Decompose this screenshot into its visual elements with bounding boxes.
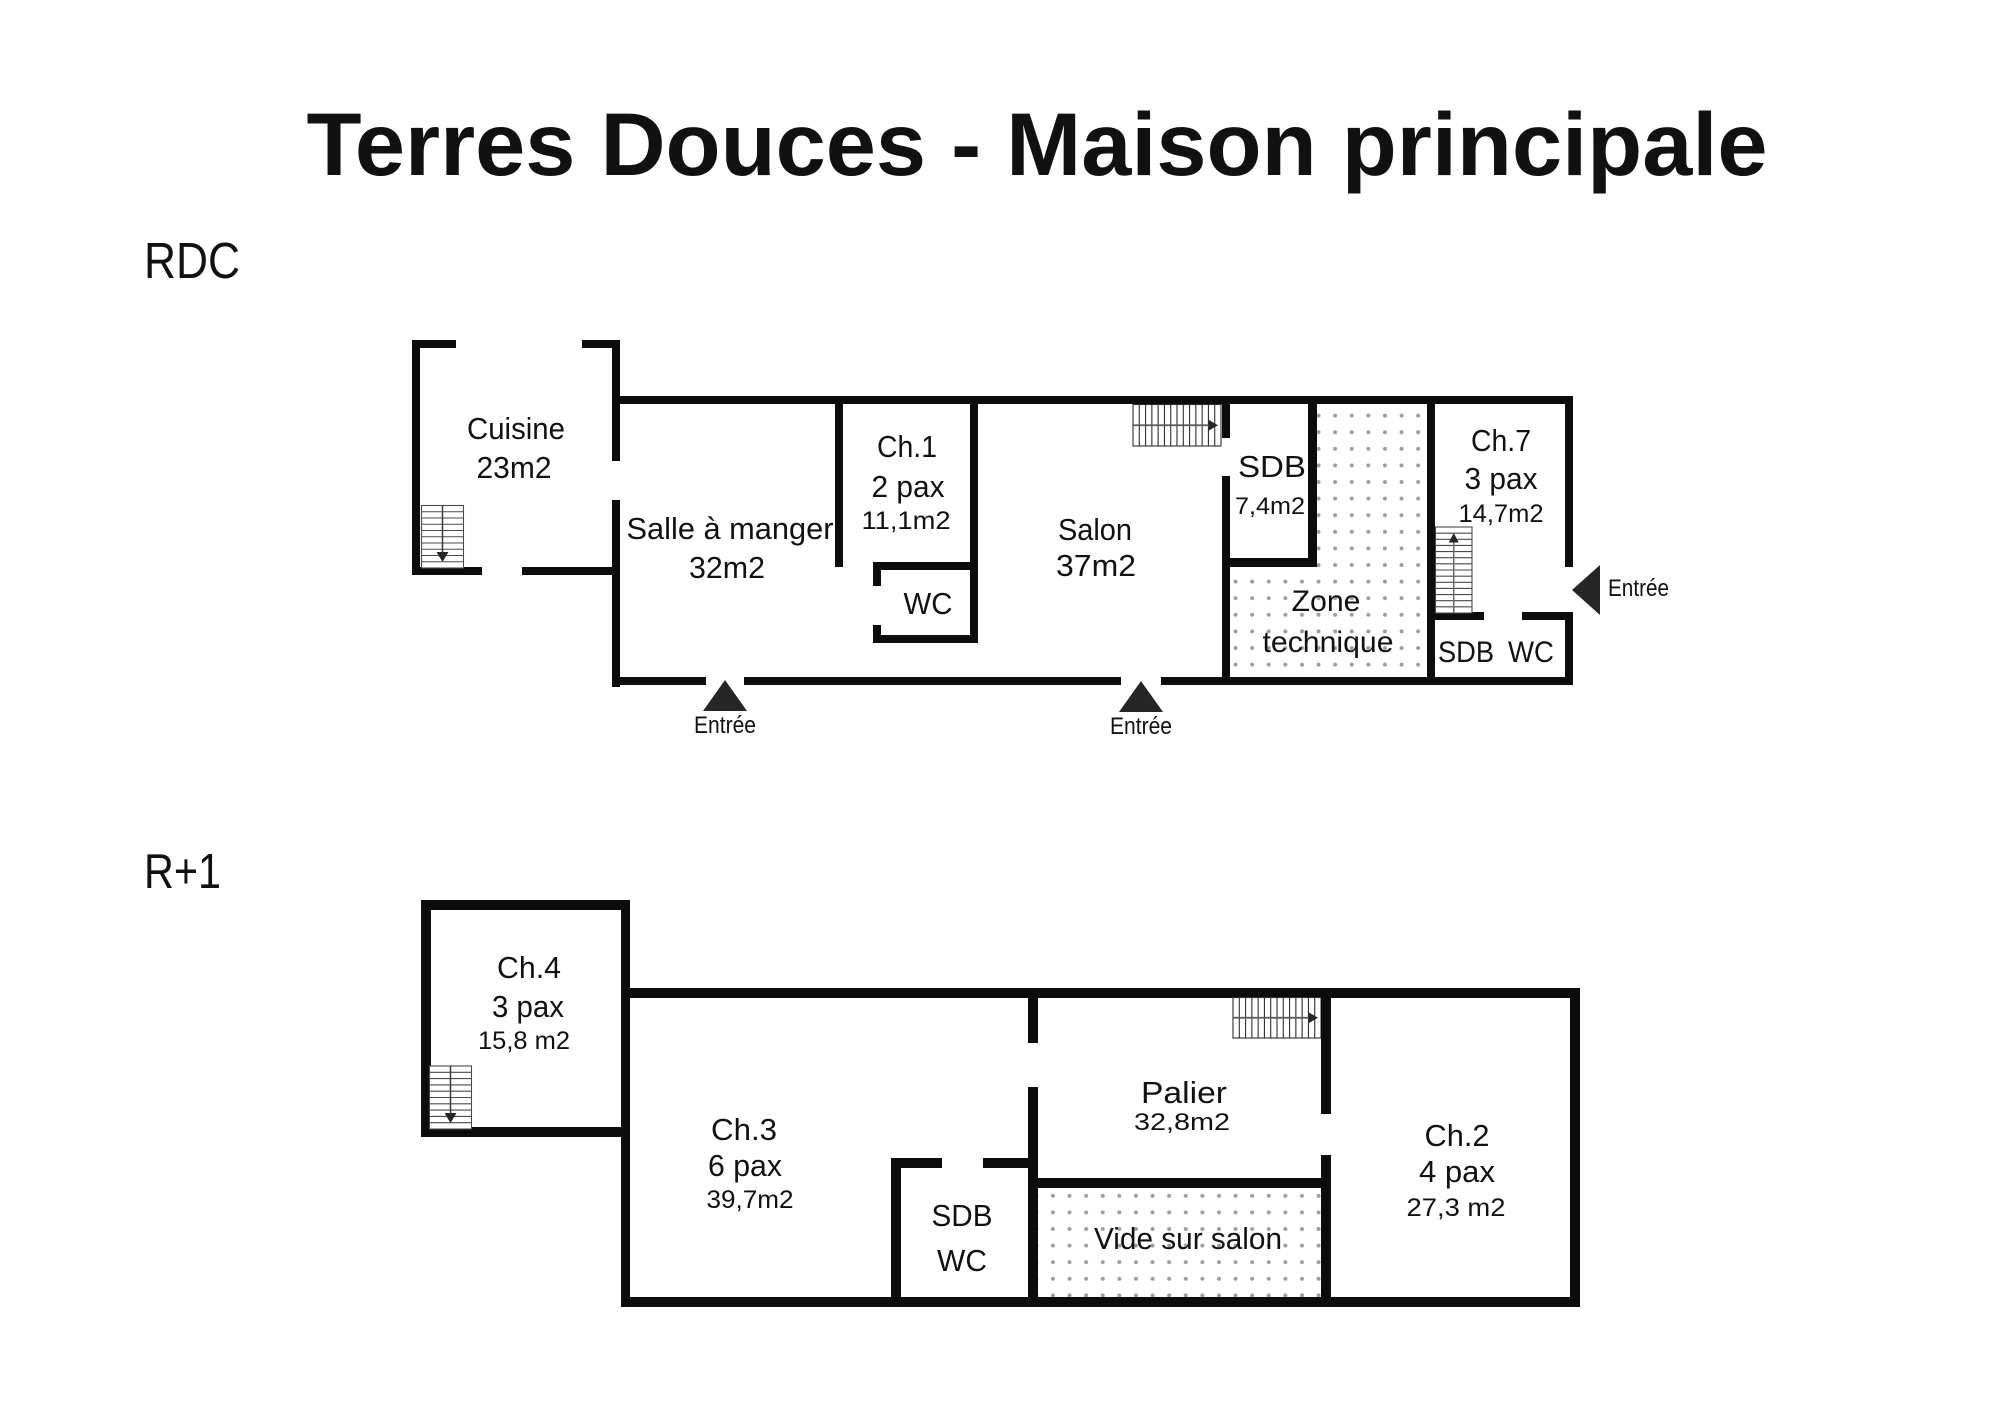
- svg-text:Ch.3: Ch.3: [711, 1112, 777, 1147]
- svg-text:32,8m2: 32,8m2: [1134, 1109, 1230, 1136]
- svg-text:14,7m2: 14,7m2: [1459, 500, 1544, 528]
- svg-text:SDB: SDB: [932, 1198, 993, 1233]
- svg-text:Salle à manger: Salle à manger: [627, 511, 834, 546]
- svg-text:Salon: Salon: [1058, 512, 1132, 547]
- svg-text:Ch.4: Ch.4: [497, 950, 561, 985]
- svg-text:WC: WC: [904, 586, 953, 621]
- svg-text:Entrée: Entrée: [1608, 575, 1669, 602]
- svg-text:23m2: 23m2: [477, 450, 552, 485]
- svg-text:R+1: R+1: [144, 845, 221, 899]
- svg-text:Palier: Palier: [1141, 1075, 1227, 1110]
- svg-text:technique: technique: [1263, 626, 1394, 659]
- svg-text:27,3 m2: 27,3 m2: [1407, 1194, 1506, 1222]
- svg-text:11,1m2: 11,1m2: [862, 507, 951, 535]
- svg-text:Entrée: Entrée: [1110, 713, 1172, 740]
- svg-text:3 pax: 3 pax: [1465, 461, 1538, 496]
- svg-text:SDB: SDB: [1238, 449, 1306, 484]
- svg-text:Vide sur salon: Vide sur salon: [1094, 1221, 1282, 1256]
- svg-text:SDB: SDB: [1438, 636, 1494, 669]
- svg-text:32m2: 32m2: [689, 550, 765, 585]
- svg-text:WC: WC: [1508, 636, 1554, 669]
- svg-text:Ch.7: Ch.7: [1471, 423, 1531, 458]
- svg-text:39,7m2: 39,7m2: [707, 1186, 794, 1214]
- svg-text:7,4m2: 7,4m2: [1235, 493, 1305, 520]
- svg-text:2 pax: 2 pax: [872, 469, 945, 504]
- svg-text:Cuisine: Cuisine: [467, 411, 565, 446]
- svg-text:Terres Douces - Maison princip: Terres Douces - Maison principale: [307, 94, 1768, 194]
- svg-text:Ch.1: Ch.1: [877, 429, 937, 464]
- svg-text:RDC: RDC: [144, 232, 240, 289]
- svg-text:Entrée: Entrée: [694, 712, 756, 739]
- svg-text:4 pax: 4 pax: [1419, 1154, 1495, 1189]
- svg-text:15,8 m2: 15,8 m2: [478, 1027, 570, 1055]
- svg-text:Ch.2: Ch.2: [1425, 1118, 1490, 1153]
- svg-text:6 pax: 6 pax: [708, 1148, 782, 1183]
- svg-text:37m2: 37m2: [1056, 548, 1136, 583]
- svg-text:Zone: Zone: [1292, 585, 1361, 618]
- svg-text:3 pax: 3 pax: [492, 989, 564, 1024]
- svg-text:WC: WC: [937, 1243, 987, 1278]
